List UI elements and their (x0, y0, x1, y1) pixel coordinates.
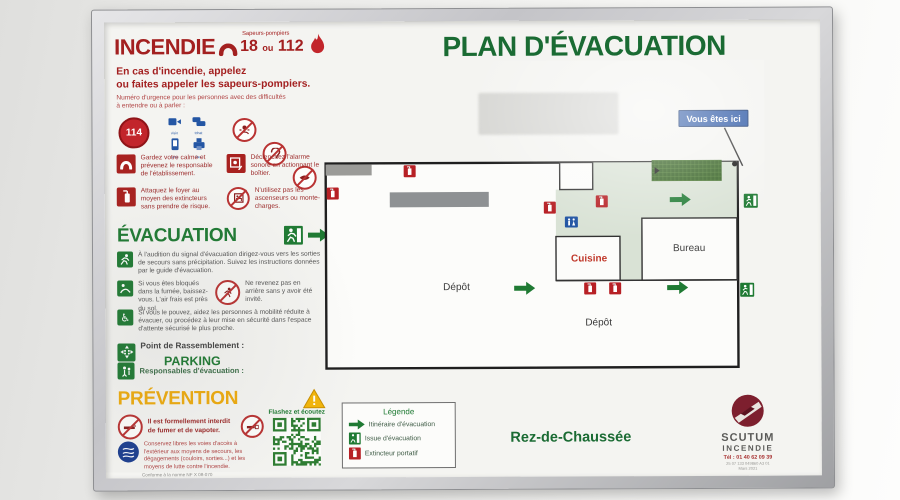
instruction-no-elevator-text: N'utilisez pas les ascenseurs ou monte-c… (255, 186, 331, 211)
no-return-icon (215, 280, 240, 305)
extinguisher-use-icon (117, 187, 136, 206)
legend-exit-icon (349, 432, 361, 444)
instruction-calm: Gardez votre calme et prévenez le respon… (117, 154, 221, 179)
legend-arrow-icon (349, 419, 365, 429)
clear-access-icon (118, 441, 139, 462)
instruction-extinguish-text: Attaquez le foyer au moyen des extincteu… (141, 187, 221, 212)
no-smoking-text: Il est formellement interdit de fumer et… (148, 418, 236, 435)
evacuation-guide-icon (117, 362, 134, 379)
evacuation-title: ÉVACUATION (117, 225, 237, 247)
scutum-brand-line2: INCENDIE (702, 444, 794, 454)
evacuation-poster: INCENDIE Sapeurs-pompiers 18 ou 112 En c… (104, 19, 822, 478)
evacuation-item-signal: À l'audition du signal d'évacuation diri… (117, 251, 329, 277)
scutum-logo-icon (731, 394, 765, 428)
emergency-numbers: 18 ou 112 (240, 38, 304, 56)
notice-line2: à entendre ou à parler : (116, 102, 326, 111)
evacuation-item-pmr: ♿ Si vous le pouvez, aidez les personnes… (117, 309, 329, 335)
instruction-alarm: Déclenchez l'alarme sonore en actionnant… (227, 154, 331, 179)
tchat-bubbles-icon: tchat (190, 113, 206, 135)
legend-issue-label: Issue d'évacuation (365, 435, 421, 442)
visio-label: visio (166, 131, 182, 135)
conformity-note: Conforme à la norme NF X 08-070 (142, 472, 213, 477)
number-18: 18 (240, 38, 258, 55)
scutum-brand-line1: SCUTUM (702, 433, 794, 444)
floor-label: Rez-de-Chaussée (476, 429, 666, 446)
qr-label: Flashez et écoutez (268, 409, 326, 416)
depot-dividing-wall (556, 280, 738, 281)
scutum-date: Mars 2021 (702, 465, 794, 470)
legend-itineraire: Itinéraire d'évacuation (349, 419, 449, 429)
assembly-point-label: Point de Rassemblement : (140, 340, 244, 350)
exit-sign-icon (284, 226, 303, 250)
no-elevator-icon (227, 187, 250, 210)
legend-title: Légende (349, 407, 449, 416)
floor-plan: Dépôt Cuisine Bureau Dépôt (323, 152, 760, 378)
phone-handset-icon (218, 39, 238, 61)
keep-access-clear-text: Conservez libres les voies d'accès à l'e… (144, 441, 262, 472)
legend-box: Légende Itinéraire d'évacuation Issue d'… (342, 402, 456, 468)
incendie-title: INCENDIE (114, 34, 215, 60)
alarm-button-icon (227, 154, 246, 173)
number-112: 112 (278, 38, 304, 55)
assembly-point-icon (117, 343, 135, 361)
evacuation-item-signal-text: À l'audition du signal d'évacuation diri… (138, 251, 329, 277)
badge-114-label: 114 (126, 127, 142, 138)
sign-language-prohibited-icon (232, 118, 256, 142)
cuisine-label: Cuisine (571, 253, 608, 264)
badge-114-icon: 114 (118, 117, 149, 148)
call-instruction-line2: ou faites appeler les sapeurs-pompiers. (116, 79, 310, 93)
evacuation-managers-row: Responsables d'évacuation : (117, 362, 329, 380)
legend-extincteur-label: Extincteur portatif (365, 450, 418, 457)
legend-issue: Issue d'évacuation (349, 432, 449, 444)
instruction-extinguish: Attaquez le foyer au moyen des extincteu… (117, 187, 221, 212)
no-smoking-row: Il est formellement interdit de fumer et… (118, 414, 268, 440)
storage-rack-grid (652, 160, 722, 181)
wheelchair-icon: ♿ (117, 309, 133, 325)
evacuation-header: ÉVACUATION (117, 225, 331, 250)
legend-extinguisher-icon (349, 447, 361, 459)
ou-label: ou (262, 43, 273, 53)
qr-code (273, 418, 321, 466)
plan-title: PLAN D'ÉVACUATION (364, 30, 804, 64)
instruction-calm-text: Gardez votre calme et prévenez le respon… (141, 154, 221, 179)
flame-icon (308, 33, 327, 61)
visio-camera-icon: visio (166, 113, 182, 135)
depot2-label: Dépôt (585, 317, 612, 328)
instruction-alarm-text: Déclenchez l'alarme sonore en actionnant… (251, 154, 331, 179)
bureau-label: Bureau (673, 243, 705, 254)
gray-block-1 (326, 164, 372, 175)
sign-frame: INCENDIE Sapeurs-pompiers 18 ou 112 En c… (91, 6, 835, 491)
instruction-no-elevator: N'utilisez pas les ascenseurs ou monte-c… (227, 186, 331, 211)
tchat-label: tchat (190, 131, 206, 135)
call-instruction: En cas d'incendie, appelez ou faites app… (116, 66, 310, 93)
scutum-footer: SCUTUM INCENDIE Tél : 01 40 62 09 39 25 … (702, 394, 794, 471)
qr-block: Flashez et écoutez (268, 409, 326, 471)
contact-channels: visio tchat sms fax (166, 113, 206, 159)
accessibility-icons-row: 114 visio tchat sms fax (116, 113, 328, 154)
wc-icon (565, 216, 578, 227)
prevention-title: PRÉVENTION (118, 388, 239, 410)
fire-instructions: Gardez votre calme et prévenez le respon… (117, 154, 331, 212)
legend-itineraire-label: Itinéraire d'évacuation (369, 421, 435, 428)
running-man-icon (117, 251, 133, 267)
emergency-notice: Numéro d'urgence pour les personnes avec… (116, 94, 326, 111)
sapeurs-label: Sapeurs-pompiers (242, 31, 289, 37)
call-instruction-line1: En cas d'incendie, appelez (116, 66, 310, 80)
no-vaping-icon (241, 415, 264, 438)
prevention-header: PRÉVENTION (118, 388, 332, 411)
you-are-here-badge: Vous êtes ici (678, 110, 748, 127)
no-smoking-icon (118, 414, 143, 439)
incendie-header: INCENDIE Sapeurs-pompiers 18 ou 112 (114, 31, 326, 66)
evacuation-managers-label: Responsables d'évacuation : (140, 366, 244, 375)
small-room (560, 162, 593, 189)
legend-extincteur: Extincteur portatif (349, 447, 449, 459)
keep-access-clear-row: Conservez libres les voies d'accès à l'e… (118, 441, 268, 472)
crouch-low-icon (117, 280, 133, 296)
evacuation-item-pmr-text: Si vous le pouvez, aidez les personnes à… (138, 309, 329, 335)
you-are-here-dot (732, 161, 737, 166)
keep-calm-phone-icon (117, 154, 136, 173)
depot1-label: Dépôt (443, 282, 470, 293)
redacted-address-box (478, 92, 618, 135)
exit-signs (740, 194, 758, 297)
gray-block-2 (390, 192, 489, 207)
